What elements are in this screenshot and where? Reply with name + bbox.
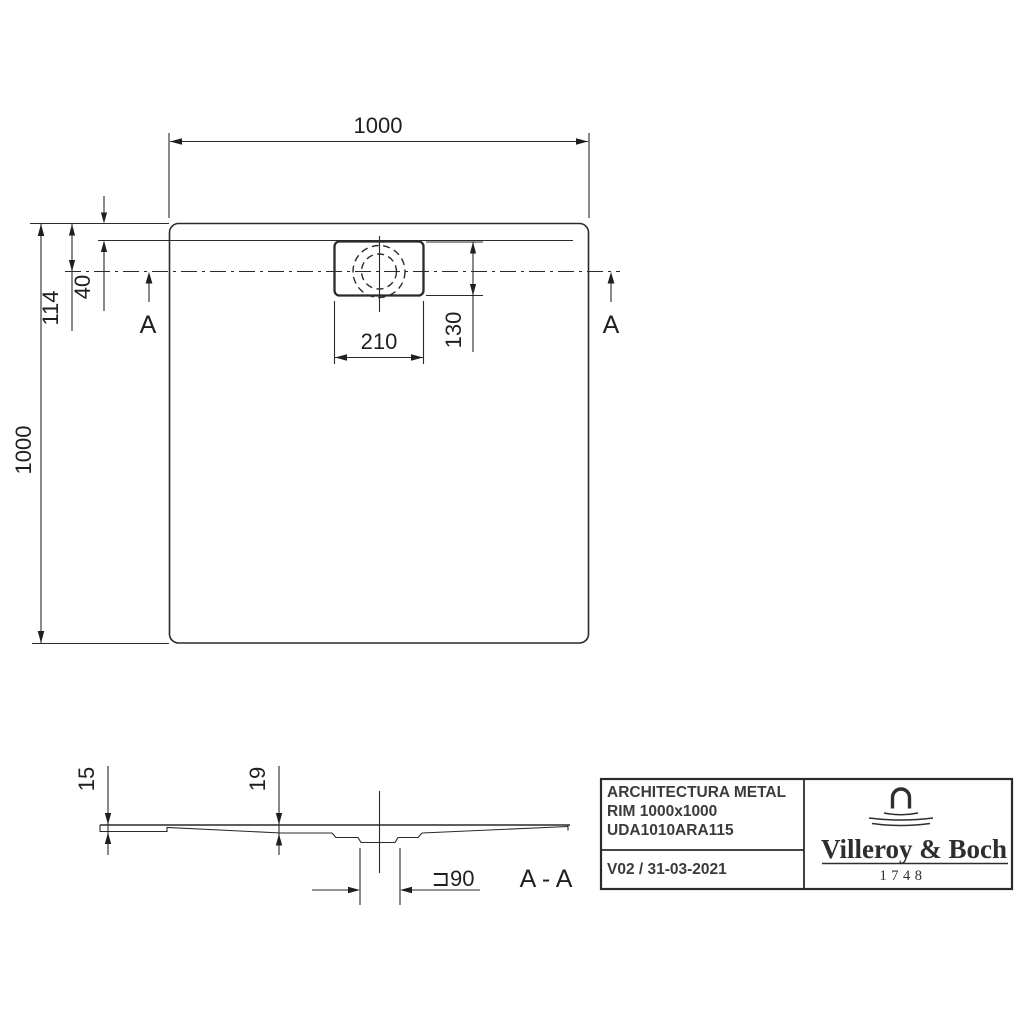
section-label-left: A (140, 311, 157, 339)
revision-date: V02 / 31-03-2021 (607, 861, 727, 878)
dim-drain-depth-130: 130 (426, 242, 483, 352)
dim-label-height: 1000 (11, 426, 36, 475)
section-arrow-up-icon (146, 272, 153, 284)
arrow-up-icon (69, 224, 75, 236)
drain-boss-outline (332, 833, 422, 843)
logo-wave-icon (872, 824, 930, 826)
dim-label-drain-center: 114 (38, 290, 63, 325)
arrow-up-icon (38, 224, 45, 236)
arrow-left-icon (170, 138, 182, 145)
dim-drain-area-height-19: 19 (245, 766, 282, 855)
arrow-left-icon (335, 354, 347, 361)
arrow-down-icon (470, 284, 476, 296)
dim-width-1000: 1000 (169, 113, 589, 218)
profile-bottom-right (422, 827, 568, 834)
arrow-down-icon (69, 260, 75, 272)
section-marker-left: A (140, 272, 157, 339)
dim-edge-height-15: 15 (74, 766, 111, 855)
section-arrow-up-icon (608, 272, 615, 284)
article-number: UDA1010ARA115 (607, 822, 734, 839)
product-variant: RIM 1000x1000 (607, 803, 717, 820)
logo-wave-icon (869, 818, 933, 820)
dim-label-edge-height: 15 (74, 767, 99, 791)
dim-drain-diameter-90: ⊐90 (312, 848, 480, 905)
arrow-right-icon (411, 354, 423, 361)
profile-bottom-left (100, 828, 332, 834)
arrow-up-icon (276, 834, 282, 846)
arrow-up-icon (105, 833, 111, 845)
arrow-up-icon (470, 242, 476, 254)
arrow-right-icon (348, 887, 360, 894)
brand-year: 1748 (880, 868, 927, 884)
dim-label-drain-area-height: 19 (245, 767, 270, 791)
title-block: ARCHITECTURA METAL RIM 1000x1000 UDA1010… (601, 779, 1012, 889)
arrow-down-icon (276, 813, 282, 825)
arrow-right-icon (576, 138, 588, 145)
dim-label-drain-width: 210 (361, 329, 398, 354)
section-label-right: A (603, 311, 620, 339)
arrow-up-icon (101, 241, 107, 253)
dim-rim-40: 40 (70, 196, 107, 311)
section-title-label: A - A (520, 865, 573, 893)
logo-arch-icon (893, 789, 910, 809)
arrow-down-icon (38, 631, 45, 643)
arrow-left-icon (400, 887, 412, 894)
section-view: 15 19 ⊐90 A - A (74, 766, 573, 905)
brand-name: Villeroy & Boch (821, 834, 1007, 864)
logo-wave-icon (884, 813, 918, 815)
top-view: 1000 1000 114 40 (11, 113, 620, 644)
arrow-down-icon (101, 213, 107, 224)
section-marker-right: A (603, 272, 620, 339)
dim-label-rim: 40 (70, 275, 95, 299)
technical-drawing: 1000 1000 114 40 (0, 0, 1022, 1022)
product-name: ARCHITECTURA METAL (607, 784, 786, 801)
drawing-sheet: 1000 1000 114 40 (0, 0, 1022, 1022)
dim-label-width: 1000 (354, 113, 403, 138)
dim-label-drain-diameter: ⊐90 (432, 866, 475, 891)
brand-logo: Villeroy & Boch 1748 (821, 789, 1008, 884)
dim-label-drain-depth: 130 (441, 312, 466, 349)
arrow-down-icon (105, 813, 111, 825)
